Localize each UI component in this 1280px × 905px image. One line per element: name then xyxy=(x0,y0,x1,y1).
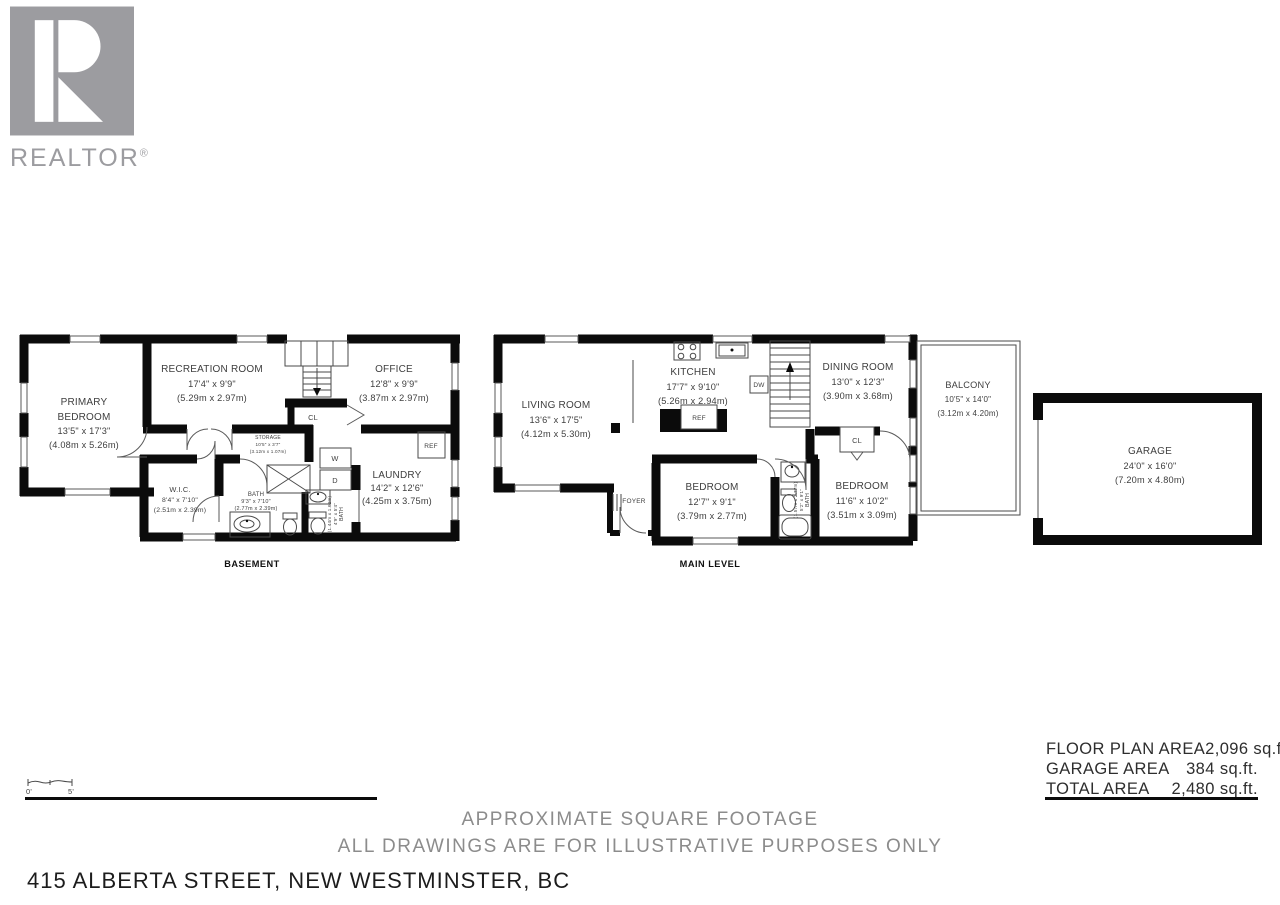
area-label: FLOOR PLAN AREA xyxy=(1046,739,1205,759)
balcony-metric: (3.12m x 4.20m) xyxy=(937,409,998,418)
bedroom2-metric: (3.51m x 3.09m) xyxy=(827,510,897,520)
basement-bath-metric: (2.77m x 2.39m) xyxy=(234,506,277,512)
main-level-plan: LIVING ROOM 13'6" x 17'5" (4.12m x 5.30m… xyxy=(494,335,1020,569)
basement-small-bath-label: (1.44m x 1.62m) 4'9" x 5'4" BATH xyxy=(327,496,345,533)
area-row-total: TOTAL AREA 2,480 sq.ft. xyxy=(1046,779,1258,799)
svg-text:5'2" x 9'1": 5'2" x 9'1" xyxy=(799,489,804,511)
basement-closet-label: CL xyxy=(308,413,318,422)
stairs-down-arrow xyxy=(313,388,321,396)
dishwasher-label: DW xyxy=(753,382,765,389)
bedroom1-label: BEDROOM xyxy=(685,482,738,493)
recreation-room-label: RECREATION ROOM xyxy=(161,364,263,375)
wic-imperial: 8'4" x 7'10" xyxy=(162,497,198,504)
basement-fridge-label: REF xyxy=(424,443,438,450)
disclaimer-line2: ALL DRAWINGS ARE FOR ILLUSTRATIVE PURPOS… xyxy=(0,836,1280,858)
divider-rule-right xyxy=(1045,797,1258,800)
primary-bedroom-metric: (4.08m x 5.26m) xyxy=(49,440,119,450)
main-closet-door xyxy=(851,452,863,460)
storage-metric: (3.12m x 1.07m) xyxy=(250,449,287,454)
area-label: TOTAL AREA xyxy=(1046,779,1150,799)
basement-bath-imperial: 9'3" x 7'10" xyxy=(241,499,271,505)
washer-label: W xyxy=(331,454,338,463)
office-label: OFFICE xyxy=(375,364,413,375)
laundry-metric: (4.25m x 3.75m) xyxy=(362,496,432,506)
living-room-imperial: 13'6" x 17'5" xyxy=(530,415,583,425)
living-room-metric: (4.12m x 5.30m) xyxy=(521,429,591,439)
storage-imperial: 10'5" x 3'7" xyxy=(255,442,280,447)
main-closet-label: CL xyxy=(852,436,862,445)
laundry-label: LAUNDRY xyxy=(372,470,421,481)
primary-bedroom-label: PRIMARY xyxy=(61,397,108,408)
area-value: 384 sq.ft. xyxy=(1186,759,1258,779)
balcony-imperial: 10'5" x 14'0" xyxy=(945,395,991,404)
scale-bar: 0' 5' xyxy=(26,779,74,796)
main-bath-label: (1.57m x 2.77m) 5'2" x 9'1" BATH xyxy=(793,482,811,519)
area-value: 2,096 sq.ft. xyxy=(1205,739,1280,759)
disclaimer-line1: APPROXIMATE SQUARE FOOTAGE xyxy=(0,809,1280,831)
kitchen-metric: (5.26m x 2.94m) xyxy=(658,396,728,406)
recreation-room-metric: (5.29m x 2.97m) xyxy=(177,393,247,403)
office-metric: (3.87m x 2.97m) xyxy=(359,393,429,403)
garage-metric: (7.20m x 4.80m) xyxy=(1115,475,1185,485)
area-row-garage: GARAGE AREA 384 sq.ft. xyxy=(1046,759,1258,779)
closet-door xyxy=(347,405,364,425)
basement-bath-label: BATH xyxy=(248,492,264,498)
wic-label: W.I.C. xyxy=(169,485,190,494)
svg-text:4'9" x 5'4": 4'9" x 5'4" xyxy=(333,503,338,525)
divider-rule-left xyxy=(25,797,377,800)
garage-label: GARAGE xyxy=(1128,446,1172,457)
stove xyxy=(674,342,700,360)
dining-room-imperial: 13'0" x 12'3" xyxy=(832,377,885,387)
basement-toilet xyxy=(283,513,297,535)
garage-imperial: 24'0" x 16'0" xyxy=(1124,461,1177,471)
primary-bedroom-imperial: 13'5" x 17'3" xyxy=(58,426,111,436)
bedroom2-label: BEDROOM xyxy=(835,481,888,492)
office-imperial: 12'8" x 9'9" xyxy=(370,379,418,389)
area-label: GARAGE AREA xyxy=(1046,759,1170,779)
main-stairs xyxy=(770,341,810,427)
svg-text:(1.57m x 2.77m): (1.57m x 2.77m) xyxy=(793,482,798,519)
dryer-label: D xyxy=(332,476,338,485)
stairs-up-arrow xyxy=(786,362,794,372)
main-level-caption: MAIN LEVEL xyxy=(680,559,741,569)
floor-plan-sheet: REALTOR® xyxy=(0,0,1280,905)
dining-room-metric: (3.90m x 3.68m) xyxy=(823,391,893,401)
area-summary: FLOOR PLAN AREA 2,096 sq.ft. GARAGE AREA… xyxy=(1046,739,1258,799)
dining-room-label: DINING ROOM xyxy=(822,362,893,373)
area-row-floor-plan: FLOOR PLAN AREA 2,096 sq.ft. xyxy=(1046,739,1258,759)
bedroom2-imperial: 11'6" x 10'2" xyxy=(836,496,888,506)
svg-text:(1.44m x 1.62m): (1.44m x 1.62m) xyxy=(327,496,332,533)
basement-shower xyxy=(267,465,310,493)
svg-text:BATH: BATH xyxy=(805,493,811,507)
bedroom1-metric: (3.79m x 2.77m) xyxy=(677,511,747,521)
scale-zero-label: 0' xyxy=(26,787,32,796)
basement-plan: PRIMARY BEDROOM 13'5" x 17'3" (4.08m x 5… xyxy=(20,335,460,569)
kitchen-imperial: 17'7" x 9'10" xyxy=(667,382,720,392)
foyer-label: FOYER xyxy=(622,498,645,505)
kitchen-label: KITCHEN xyxy=(670,367,715,378)
balcony-outline xyxy=(917,341,1020,515)
scale-five-label: 5' xyxy=(68,787,74,796)
living-room-label: LIVING ROOM xyxy=(522,400,591,411)
kitchen-sink xyxy=(716,343,748,358)
laundry-imperial: 14'2" x 12'6" xyxy=(371,483,424,493)
primary-bedroom-label2: BEDROOM xyxy=(57,412,110,423)
main-fridge-label: REF xyxy=(692,415,706,422)
bedroom1-imperial: 12'7" x 9'1" xyxy=(688,497,736,507)
recreation-room-imperial: 17'4" x 9'9" xyxy=(188,379,236,389)
property-address: 415 ALBERTA STREET, NEW WESTMINSTER, BC xyxy=(27,868,570,894)
balcony-label: BALCONY xyxy=(945,380,990,390)
basement-caption: BASEMENT xyxy=(224,559,280,569)
storage-label: STORAGE xyxy=(255,435,281,441)
svg-text:BATH: BATH xyxy=(339,507,345,521)
wic-metric: (2.51m x 2.39m) xyxy=(154,507,206,514)
basement-stairs xyxy=(285,341,348,397)
garage-plan: GARAGE 24'0" x 16'0" (7.20m x 4.80m) xyxy=(1033,393,1262,545)
area-value: 2,480 sq.ft. xyxy=(1172,779,1258,799)
